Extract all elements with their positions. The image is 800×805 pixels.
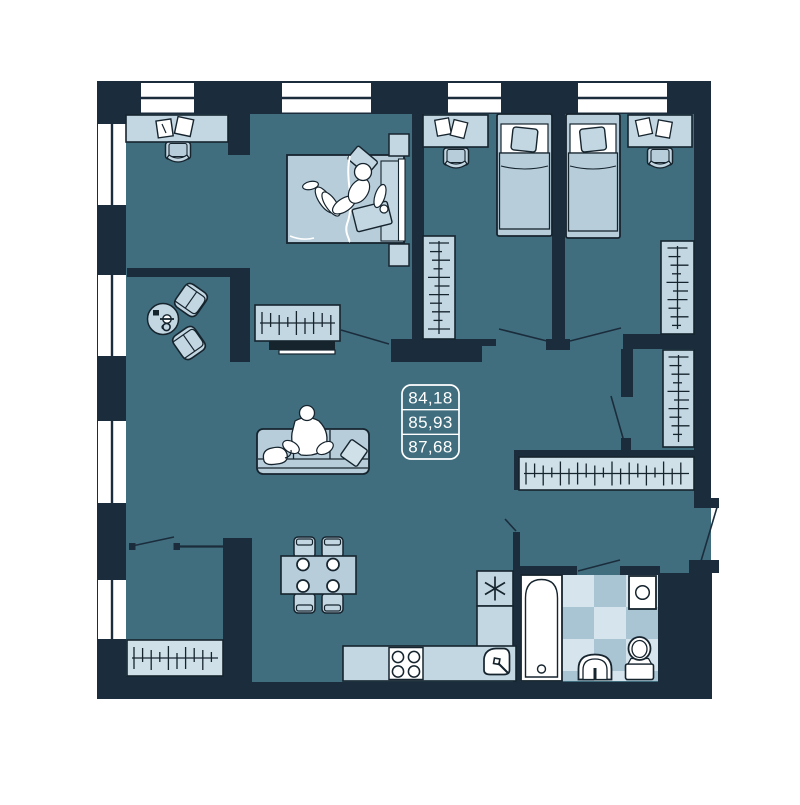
svg-text:87,68: 87,68 [408,438,453,457]
svg-text:84,18: 84,18 [408,389,453,408]
svg-text:85,93: 85,93 [408,413,453,432]
